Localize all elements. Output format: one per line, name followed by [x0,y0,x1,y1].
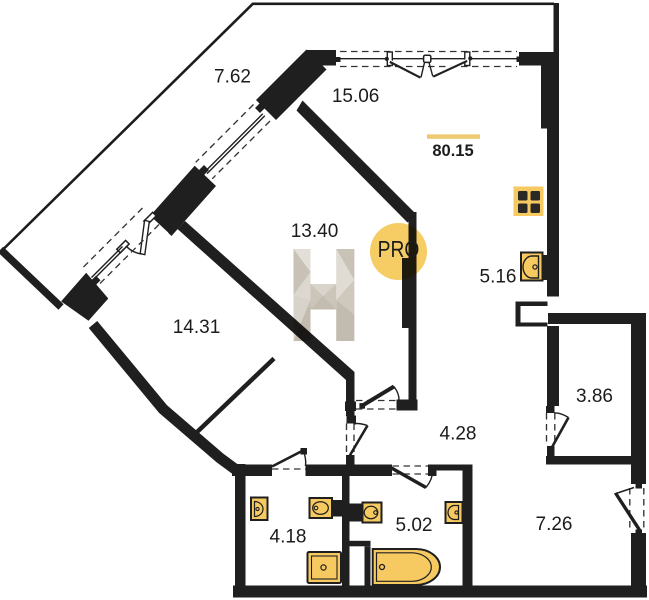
svg-text:5.02: 5.02 [396,515,433,536]
svg-text:PRO: PRO [378,236,420,262]
svg-text:4.18: 4.18 [270,527,307,548]
svg-text:80.15: 80.15 [432,142,473,160]
svg-text:15.06: 15.06 [332,86,380,107]
svg-text:7.62: 7.62 [214,67,251,88]
svg-text:4.28: 4.28 [440,424,477,445]
svg-text:13.40: 13.40 [291,221,339,242]
svg-text:3.86: 3.86 [576,386,613,407]
svg-text:7.26: 7.26 [536,514,573,535]
svg-text:5.16: 5.16 [480,267,517,288]
svg-text:14.31: 14.31 [173,317,221,338]
